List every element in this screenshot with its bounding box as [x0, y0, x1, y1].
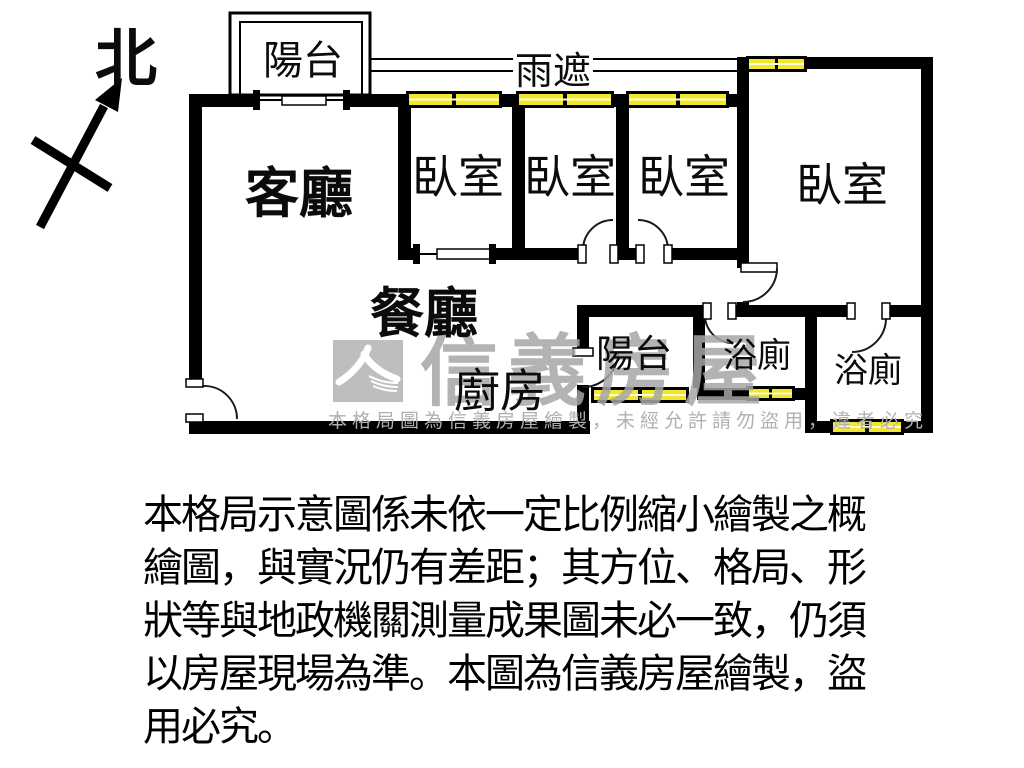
bath1-label: 浴廁	[723, 337, 791, 375]
disclaimer-text: 本格局示意圖係未依一定比例縮小繪製之概 繪圖，與實況仍有差距；其方位、格局、形 …	[143, 488, 933, 753]
bedroom2-door	[578, 220, 618, 263]
bedroom3-label: 臥室	[638, 152, 730, 203]
kitchen-label: 廚房	[454, 366, 546, 417]
north-arrow	[33, 78, 122, 227]
bedroom1-label: 臥室	[412, 152, 504, 203]
window-bedroom3	[626, 91, 729, 108]
compass-label: 北	[95, 26, 157, 94]
master-bedroom-door	[741, 263, 777, 302]
disclaimer-line: 以房屋現場為準。本圖為信義房屋繪製，盜	[143, 647, 933, 700]
disclaimer-line: 用必究。	[143, 700, 933, 753]
entry-door	[186, 379, 237, 422]
bedroom2-label: 臥室	[524, 152, 616, 203]
floorplan-page: { "plan": { "compass": "北", "rooms": { "…	[0, 0, 1024, 768]
living-room-label: 客廳	[245, 164, 353, 224]
window-bedroom1	[406, 91, 502, 108]
dining-room-label: 餐廳	[370, 284, 478, 344]
disclaimer-line: 本格局示意圖係未依一定比例縮小繪製之概	[143, 488, 933, 541]
disclaimer-line: 繪圖，與實況仍有差距；其方位、格局、形	[143, 541, 933, 594]
balcony-top-label: 陽台	[263, 38, 343, 83]
bath2-door	[847, 303, 890, 352]
rear-balcony-label: 陽台	[596, 334, 672, 376]
watermark-notice: 本格局圖為信義房屋繪製，未經允許請勿盜用，違者必究	[328, 410, 928, 432]
window-bedroom2	[516, 91, 614, 108]
master-bedroom-label: 臥室	[796, 160, 888, 211]
rain-cover-label: 雨遮	[515, 51, 591, 93]
bedroom3-door	[636, 220, 672, 263]
balcony-sliding-door	[253, 90, 350, 110]
floor-plan: 北	[0, 0, 1024, 480]
window-master-bedroom	[746, 56, 807, 72]
bath2-label: 浴廁	[834, 352, 902, 390]
disclaimer-line: 狀等與地政機關測量成果圖未必一致，仍須	[143, 594, 933, 647]
bedroom1-sliding-door	[413, 244, 496, 264]
